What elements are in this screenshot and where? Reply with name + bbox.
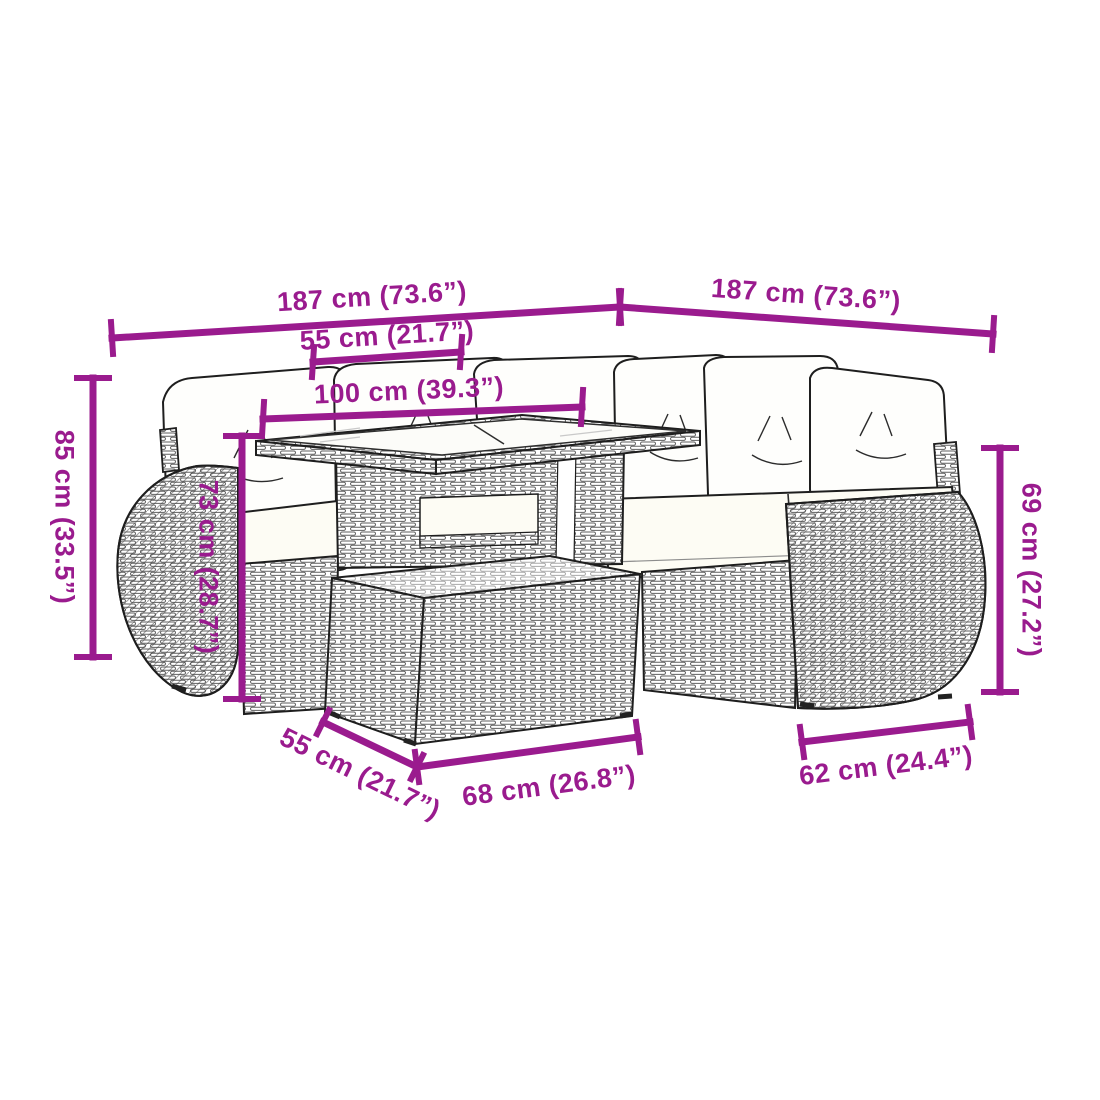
dimension-label-armrest-height: 69 cm (27.2”) [1016, 483, 1047, 658]
sofa-illustration [117, 355, 985, 744]
right-seat-base [642, 560, 798, 708]
footstool-front-face [415, 574, 640, 744]
footstool [325, 556, 640, 744]
right-armrest [786, 492, 985, 709]
left-back-post [160, 428, 179, 472]
footstool-left-face [325, 578, 424, 744]
left-seat-base [240, 556, 338, 714]
dimension-label-back-height: 85 cm (33.5”) [49, 430, 80, 605]
furniture-line-art [0, 0, 1100, 1100]
dimension-line-armrest-height [984, 448, 1016, 692]
table-support-gap [556, 448, 576, 563]
dimension-label-table-height: 73 cm (28.7”) [193, 480, 224, 655]
dimension-line-back-height [77, 378, 109, 657]
product-dimension-diagram: 187 cm (73.6”) 187 cm (73.6”) 55 cm (21.… [0, 0, 1100, 1100]
